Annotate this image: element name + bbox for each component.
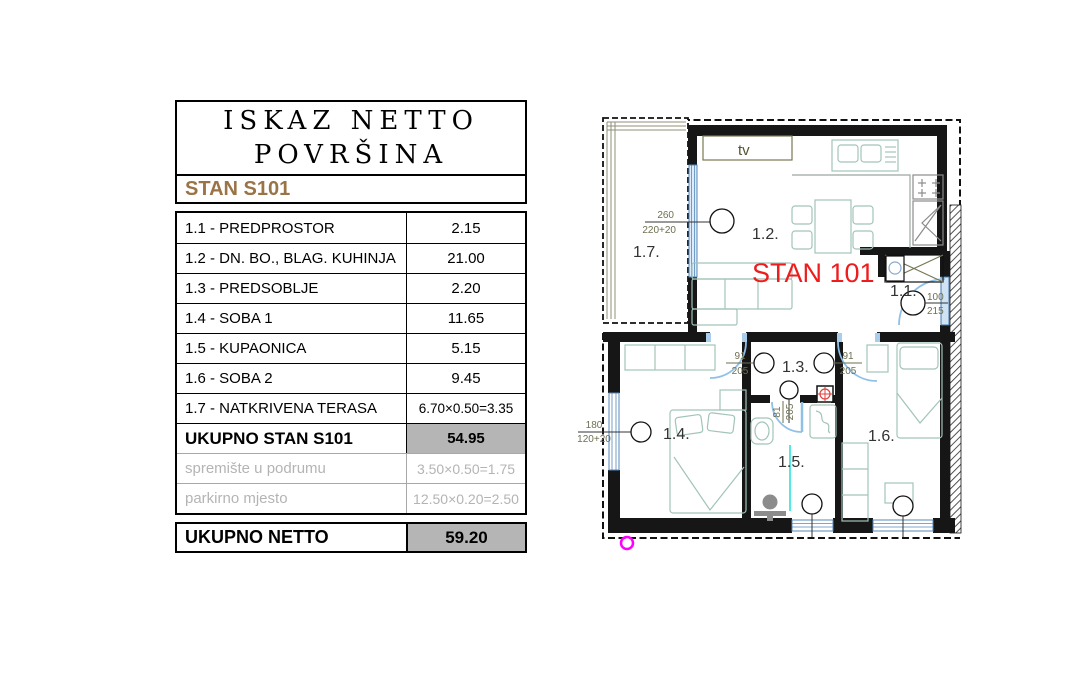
dim-text: 91 [842,351,854,362]
row-value: 9.45 [406,364,525,393]
room-label-1-2: 1.2. [752,226,779,243]
dim-text: 100 [927,292,944,303]
apartment-subtitle-text: STAN S101 [185,178,290,201]
row-value: 21.00 [406,244,525,273]
row-label: 1.4 - SOBA 1 [177,304,406,333]
table-row: 1.1 - PREDPROSTOR 2.15 [177,213,525,243]
row-value: 2.20 [406,274,525,303]
entry-closet [885,255,943,282]
dim-text: 81 [772,406,783,418]
dim-text: 205 [732,366,749,377]
table-row: 1.3 - PREDSOBLJE 2.20 [177,273,525,303]
table-row: 1.5 - KUPAONICA 5.15 [177,333,525,363]
dining-set [792,200,873,253]
net-total-label: UKUPNO NETTO [177,524,406,551]
table-row-muted: spremište u podrumu 3.50×0.50=1.75 [177,453,525,483]
row-label: 1.2 - DN. BO., BLAG. KUHINJA [177,244,406,273]
room-label-1-3: 1.3. [782,359,809,376]
row-value: 5.15 [406,334,525,363]
row-label: 1.6 - SOBA 2 [177,364,406,393]
table-title-line2: POVRŠINA [254,138,448,172]
row-label: 1.7 - NATKRIVENA TERASA [177,394,406,423]
table-row: 1.2 - DN. BO., BLAG. KUHINJA 21.00 [177,243,525,273]
row-value: 11.65 [406,304,525,333]
room-label-1-6: 1.6. [868,428,895,445]
dim-text: 120+20 [577,434,611,445]
dim-text: 215 [927,306,944,317]
row-label: 1.5 - KUPAONICA [177,334,406,363]
dim-text: 205 [840,366,857,377]
terrace-slider-window [689,165,697,277]
table-row: 1.6 - SOBA 2 9.45 [177,363,525,393]
dim-text: 260 [657,210,674,221]
row-label: parkirno mjesto [177,484,406,513]
room-label-1-1: 1.1. [890,283,917,300]
row-value: 2.15 [406,213,525,243]
row-label: 1.1 - PREDPROSTOR [177,213,406,243]
total-label: UKUPNO STAN S101 [177,424,406,453]
tv-label: tv [738,142,750,159]
dim-bath-door: 81 205 [772,381,798,423]
net-total-value: 59.20 [406,524,525,551]
table-row: 1.4 - SOBA 1 11.65 [177,303,525,333]
table-title: ISKAZ NETTO POVRŠINA [175,100,527,176]
room-label-1-5: 1.5. [778,454,805,471]
table-row: 1.7 - NATKRIVENA TERASA 6.70×0.50=3.35 [177,393,525,423]
net-total-row: UKUPNO NETTO 59.20 [175,522,527,553]
row-label: 1.3 - PREDSOBLJE [177,274,406,303]
room-label-1-7: 1.7. [633,244,660,261]
apartment-subtitle: STAN S101 [175,176,527,204]
floorplan-drawing: 260 220+20 100 215 91 205 91 205 81 [570,105,970,565]
neighbour-wall-hatch [950,205,961,533]
area-table: 1.1 - PREDPROSTOR 2.15 1.2 - DN. BO., BL… [175,211,527,515]
floorplan: 260 220+20 100 215 91 205 91 205 81 [570,105,970,565]
total-value: 54.95 [406,424,525,453]
row-label: spremište u podrumu [177,454,406,483]
terrace [603,118,688,323]
room-label-1-4: 1.4. [663,426,690,443]
dim-text: 91 [734,351,746,362]
apartment-name-label: STAN 101 [752,258,875,288]
dim-text: 220+20 [642,225,676,236]
magenta-marker [621,537,633,549]
row-value: 12.50×0.20=2.50 [406,484,525,513]
dim-text: 180 [586,420,603,431]
row-value: 3.50×0.50=1.75 [406,454,525,483]
toilet [754,495,786,522]
row-value: 6.70×0.50=3.35 [406,394,525,423]
table-row-total: UKUPNO STAN S101 54.95 [177,423,525,453]
electrical-box [817,386,833,402]
table-row-muted: parkirno mjesto 12.50×0.20=2.50 [177,483,525,513]
table-title-line1: ISKAZ NETTO [223,104,479,138]
dim-text: 205 [785,403,796,420]
